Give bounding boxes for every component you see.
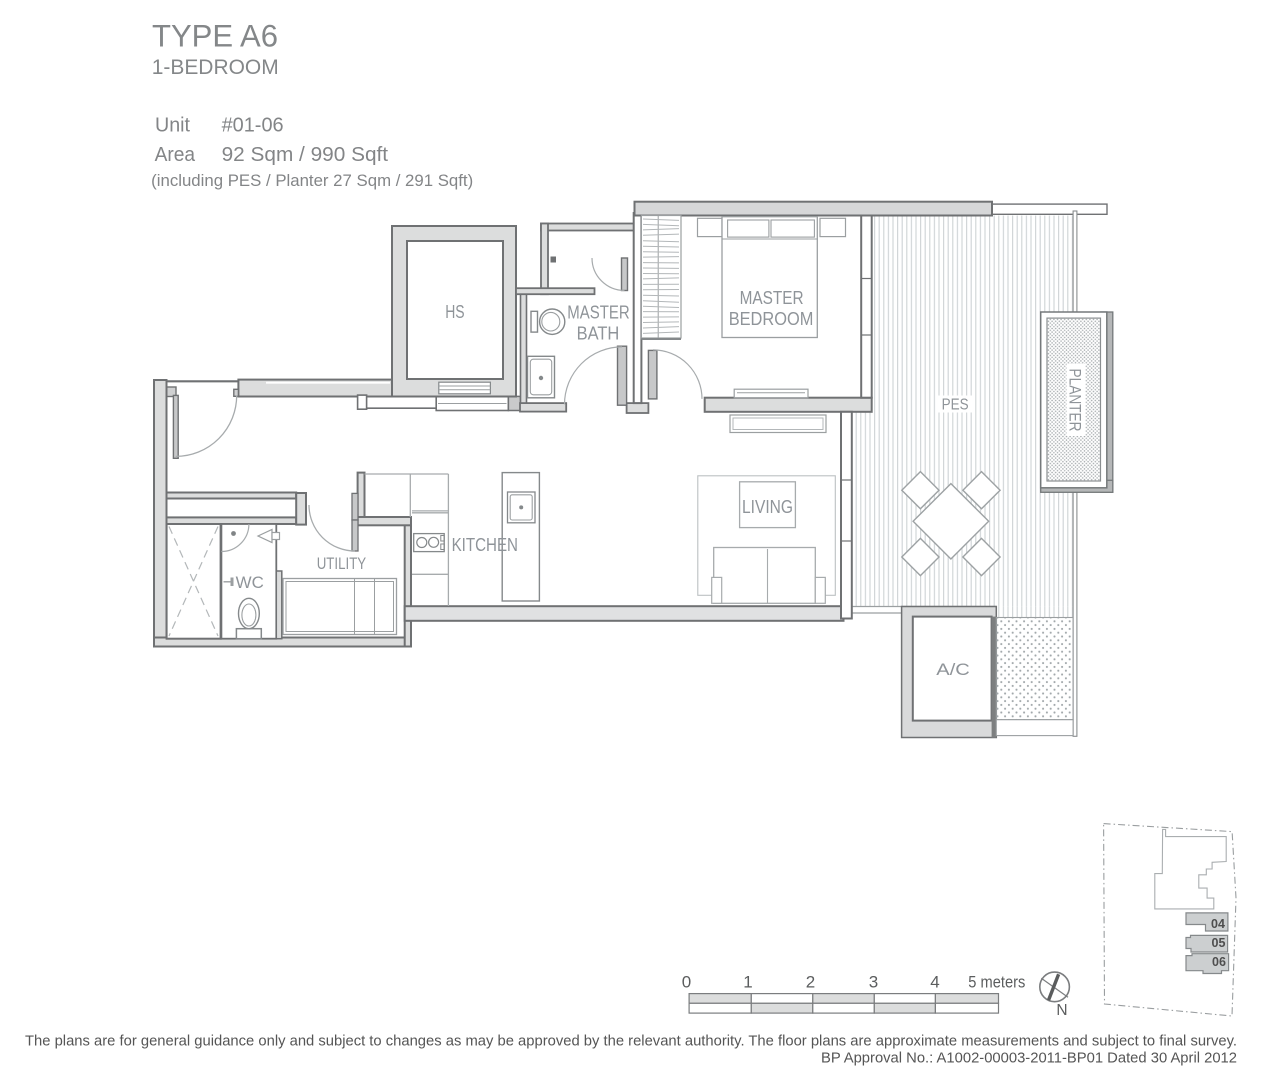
svg-text:92 Sqm / 990 Sqft: 92 Sqm / 990 Sqft bbox=[222, 143, 389, 166]
svg-text:1: 1 bbox=[743, 973, 752, 992]
svg-text:0: 0 bbox=[682, 973, 691, 992]
svg-text:A/C: A/C bbox=[936, 660, 970, 679]
svg-text:WC: WC bbox=[236, 574, 264, 592]
svg-text:Unit: Unit bbox=[155, 114, 190, 137]
svg-text:KITCHEN: KITCHEN bbox=[452, 535, 518, 555]
svg-text:BEDROOM: BEDROOM bbox=[729, 309, 814, 329]
svg-text:(including PES / Planter 27 Sq: (including PES / Planter 27 Sqm / 291 Sq… bbox=[151, 171, 473, 190]
svg-text:5 meters: 5 meters bbox=[968, 973, 1025, 992]
svg-text:BATH: BATH bbox=[577, 324, 620, 344]
svg-text:HS: HS bbox=[445, 302, 464, 322]
svg-text:Area: Area bbox=[155, 143, 196, 166]
svg-text:PLANTER: PLANTER bbox=[1066, 369, 1085, 432]
svg-text:04: 04 bbox=[1211, 917, 1225, 931]
svg-text:UTILITY: UTILITY bbox=[317, 555, 367, 573]
svg-text:06: 06 bbox=[1212, 955, 1226, 969]
svg-text:MASTER: MASTER bbox=[740, 288, 804, 308]
svg-text:MASTER: MASTER bbox=[567, 303, 629, 323]
svg-text:05: 05 bbox=[1212, 936, 1226, 950]
svg-text:LIVING: LIVING bbox=[742, 497, 793, 517]
svg-text:2: 2 bbox=[806, 973, 815, 992]
svg-text:The plans are for general guid: The plans are for general guidance only … bbox=[25, 1033, 1237, 1050]
svg-text:BP Approval No.: A1002-00003-2: BP Approval No.: A1002-00003-2011-BP01 D… bbox=[821, 1050, 1237, 1067]
svg-text:1-BEDROOM: 1-BEDROOM bbox=[152, 56, 279, 79]
svg-text:4: 4 bbox=[930, 973, 939, 992]
svg-text:N: N bbox=[1056, 1002, 1067, 1019]
svg-text:TYPE A6: TYPE A6 bbox=[152, 18, 278, 54]
svg-text:3: 3 bbox=[869, 973, 878, 992]
svg-text:#01-06: #01-06 bbox=[222, 114, 284, 137]
svg-text:PES: PES bbox=[942, 397, 969, 414]
